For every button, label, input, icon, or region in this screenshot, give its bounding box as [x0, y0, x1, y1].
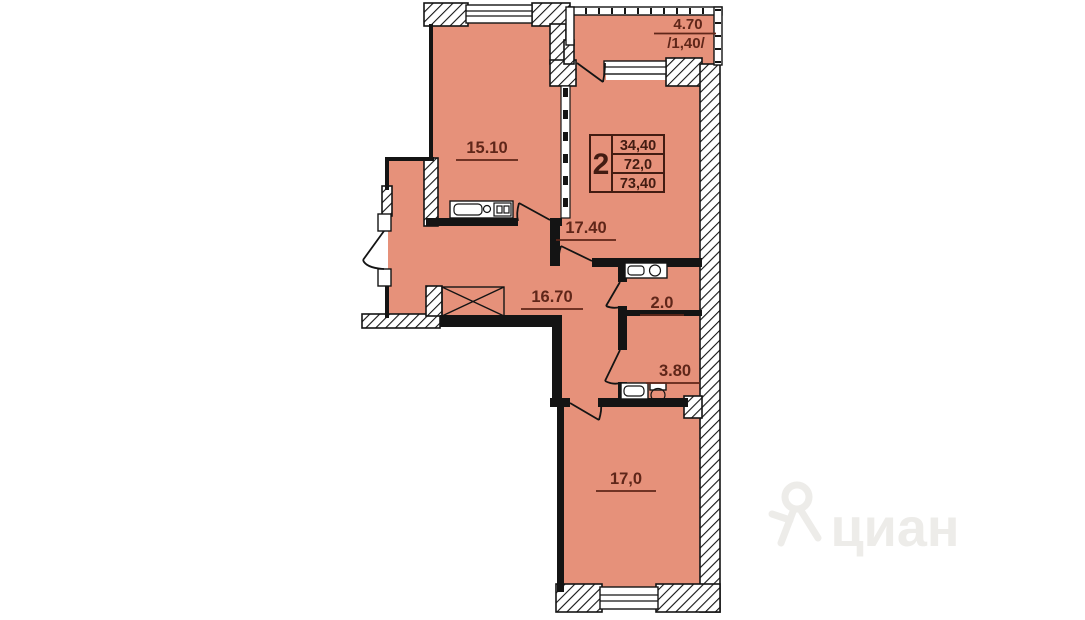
wall-hall-pillar	[426, 286, 442, 316]
entry-door-jamb-top	[378, 214, 391, 231]
wall-bay-top	[386, 157, 434, 161]
wall-corridor-mid	[618, 306, 627, 350]
info-area: 72,0	[624, 157, 652, 173]
wall-kitchen-top-right	[532, 3, 570, 26]
window-bedroom	[600, 587, 658, 609]
dashed-partition	[561, 86, 570, 218]
wall-exterior-right	[700, 64, 720, 612]
info-rooms-count: 2	[593, 148, 610, 181]
label-hall-area: 16.70	[531, 288, 572, 306]
label-wc-area: 2.0	[651, 294, 674, 312]
wall-kitchen-bay	[424, 158, 438, 226]
watermark-text: циан	[830, 498, 959, 558]
watermark: циан	[772, 485, 960, 558]
window-kitchen	[466, 5, 532, 23]
door-entrance	[363, 231, 384, 269]
wall-hall-bottom	[440, 315, 562, 327]
label-bedroom-area: 17,0	[610, 470, 642, 488]
wall-corridor-left	[552, 315, 562, 407]
wall-kitchen-bottom	[426, 218, 518, 226]
wall-bay-left	[382, 186, 392, 216]
label-balcony-reduced: /1,40/	[667, 35, 705, 52]
entry-door-jamb-bottom	[378, 269, 391, 286]
wall-kitchen-left	[429, 24, 433, 160]
window-living-balcony	[604, 61, 666, 74]
wall-kitchen-top-left	[424, 3, 468, 26]
cian-pin-icon	[772, 485, 818, 543]
label-living-area: 17.40	[565, 219, 606, 237]
wall-bedroom-left	[557, 402, 564, 592]
label-kitchen-area: 15.10	[466, 139, 507, 157]
railing-left	[566, 7, 574, 45]
info-total-area: 73,40	[620, 176, 656, 192]
wall-bay-left-lower	[385, 284, 389, 318]
label-bathroom-area: 3.80	[659, 362, 691, 380]
room-area-kitchen	[430, 20, 566, 226]
railing-top	[570, 7, 722, 15]
wc-washing-machine	[625, 263, 667, 278]
info-living-area: 34,40	[620, 138, 656, 154]
room-area-bedroom	[558, 402, 702, 594]
kitchen-counter	[450, 201, 513, 218]
label-balcony-area: 4.70	[673, 16, 702, 33]
wall-living-top-right	[666, 58, 702, 86]
floor-plan-drawing: 15.10 17.40 16.70 2.0 3.80 17,0 4.70 /1,…	[0, 0, 1085, 620]
floor-plan-page: 15.10 17.40 16.70 2.0 3.80 17,0 4.70 /1,…	[0, 0, 1085, 620]
wall-bedroom-bottom-right	[656, 584, 720, 612]
wall-bay-left-upper	[385, 157, 389, 190]
